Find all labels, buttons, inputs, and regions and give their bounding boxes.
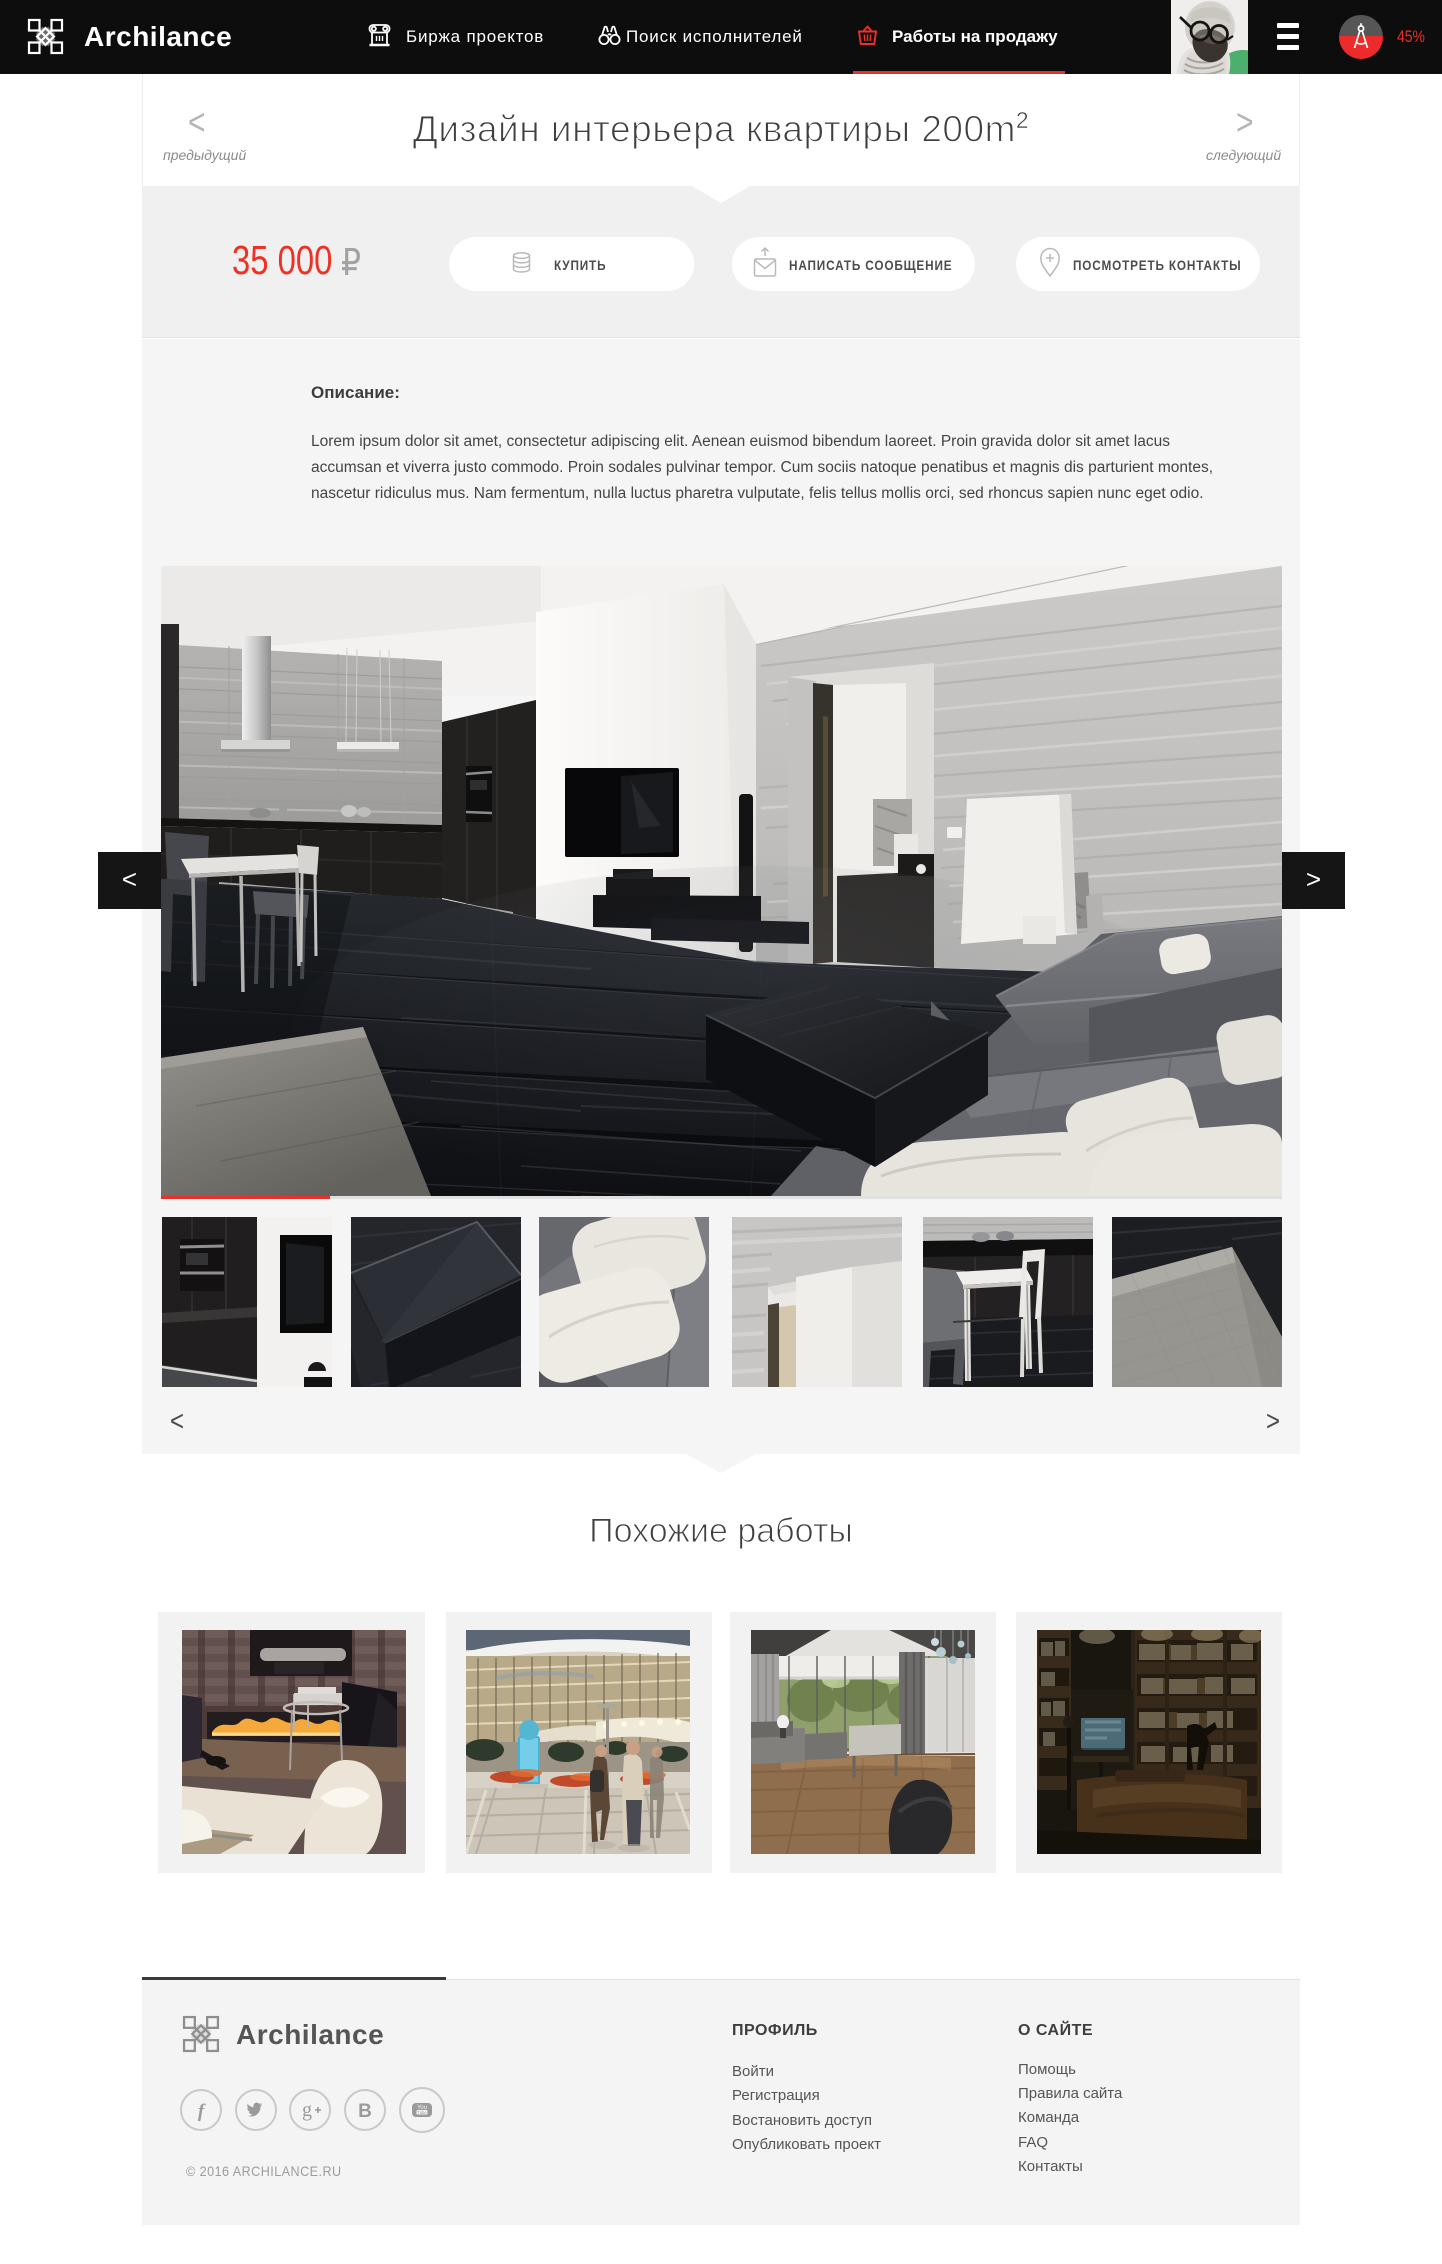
svg-text:B: B [358, 2101, 372, 2122]
svg-text:Tube: Tube [417, 2110, 427, 2115]
svg-text:f: f [198, 2101, 206, 2122]
svg-text:g: g [302, 2099, 312, 2121]
